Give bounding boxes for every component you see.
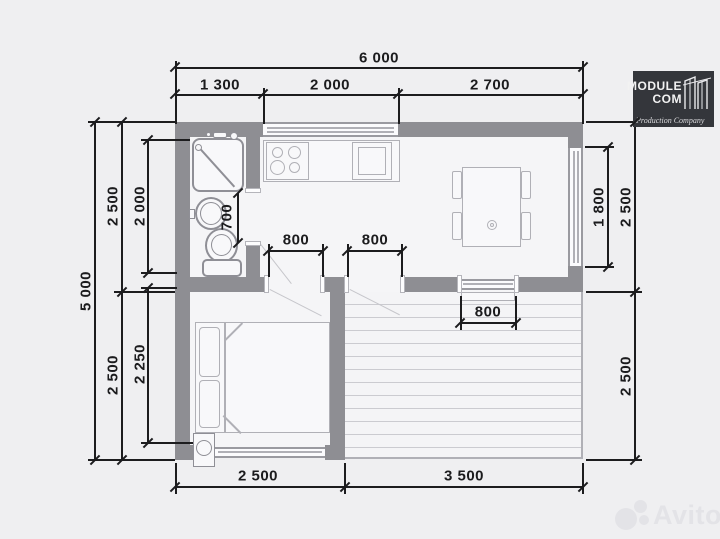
chair: [452, 171, 462, 199]
kitchen-window-frame2: [267, 131, 394, 133]
door2-jamb-left: [344, 275, 349, 293]
dim-right-top: 2 500: [619, 187, 634, 227]
watermark-text: Avito: [653, 500, 720, 531]
kitchen-window: [263, 122, 398, 137]
dim-door2: 800: [362, 233, 389, 248]
watermark-circle-icon: [615, 508, 637, 530]
dim-bath-door: 700: [220, 204, 235, 231]
dim-line-bath-door: [237, 193, 239, 243]
pillow: [199, 380, 220, 428]
dining-window: [568, 148, 583, 266]
shower-drain-icon: [195, 144, 202, 151]
ext-line: [88, 121, 175, 123]
bath-door-jamb-top: [245, 188, 261, 193]
watermark-circle-icon: [634, 500, 647, 513]
bedroom-window-frame: [218, 451, 322, 453]
wall-bathroom-lower: [246, 243, 260, 277]
wall-bedroom-right: [330, 292, 345, 460]
wall-bathroom-upper: [246, 137, 260, 192]
dim-left-total: 5 000: [79, 271, 94, 311]
kitchen-sink-inner: [358, 147, 386, 175]
wall-bedroom-bottom-right: [325, 445, 345, 460]
dim-line-bottom: [175, 486, 583, 488]
dim-line-top-segments: [175, 94, 583, 96]
dim-top-seg1: 1 300: [200, 78, 240, 93]
chair: [521, 171, 531, 199]
ext-line: [582, 463, 584, 494]
ext-line: [344, 463, 346, 494]
wall-middle-seg3: [402, 277, 460, 292]
dim-left-inner-bottom: 2 250: [133, 344, 148, 384]
dim-top-seg2: 2 000: [310, 78, 350, 93]
burner-icon: [289, 162, 300, 173]
chair: [452, 212, 462, 240]
dim-bottom-left: 2 500: [238, 469, 278, 484]
terrace-door-jamb-right: [514, 275, 519, 293]
logo-building-icon: [683, 75, 711, 113]
bedroom-window: [215, 447, 325, 458]
bath-door-jamb-bottom: [245, 241, 261, 246]
toilet-bowl-inner: [211, 234, 232, 256]
dim-right-window: 1 800: [592, 187, 607, 227]
wall-right-upper: [568, 122, 583, 148]
deck-edge-bottom: [345, 457, 582, 459]
door1-jamb-left: [264, 275, 269, 293]
shower-faucet-icon: [213, 132, 227, 138]
watermark-circle-icon: [639, 515, 649, 525]
dim-right-bottom: 2 500: [619, 356, 634, 396]
logo-tagline: Production Company: [636, 116, 712, 125]
dining-table: [462, 167, 521, 247]
terrace-door-frame: [463, 283, 513, 285]
company-logo: MODULE COM Production Company: [633, 71, 714, 127]
dim-line-door2: [347, 250, 402, 252]
faucet-handle-right-icon: [230, 132, 238, 140]
dining-window-frame2: [577, 151, 579, 263]
terrace-door-jamb-left: [457, 275, 462, 293]
ext-line: [175, 463, 177, 494]
dim-bottom-right: 3 500: [444, 469, 484, 484]
table-centerpiece-dot: [490, 223, 494, 227]
dim-door1: 800: [283, 233, 310, 248]
terrace-door: [460, 279, 516, 290]
boiler-dial-icon: [196, 440, 212, 456]
dim-line-terrace-door: [460, 322, 516, 324]
burner-icon: [288, 146, 301, 159]
burner-icon: [272, 147, 283, 158]
dim-top-total: 6 000: [359, 51, 399, 66]
dim-line-door1: [268, 250, 323, 252]
dim-line-top-total: [175, 67, 583, 69]
wall-middle-seg1: [175, 277, 268, 292]
door1-jamb-right: [320, 275, 325, 293]
dim-top-seg3: 2 700: [470, 78, 510, 93]
dim-left-top: 2 500: [106, 186, 121, 226]
wall-middle-seg4: [516, 277, 583, 292]
logo-name-line2: COM: [627, 93, 682, 106]
dim-left-bottom: 2 500: [106, 355, 121, 395]
pillow: [199, 327, 220, 377]
dim-terrace-door: 800: [475, 305, 502, 320]
burner-icon: [270, 160, 285, 175]
ext-line: [88, 459, 175, 461]
dining-window-frame: [573, 151, 575, 263]
basin-faucet-icon: [189, 209, 195, 219]
terrace-door-sill: [461, 292, 515, 301]
wall-top-right: [398, 122, 583, 137]
door2-jamb-right: [400, 275, 405, 293]
faucet-handle-left-icon: [206, 132, 211, 137]
dim-left-inner-top: 2 000: [133, 186, 148, 226]
toilet-tank: [202, 259, 242, 277]
floor-plan-canvas: 6 000 1 300 2 000 2 700 5 000 2 500 2 50…: [0, 0, 720, 539]
chair: [521, 212, 531, 240]
kitchen-window-frame: [267, 127, 394, 129]
deck-edge-right: [581, 292, 583, 459]
ext-line: [460, 296, 462, 330]
